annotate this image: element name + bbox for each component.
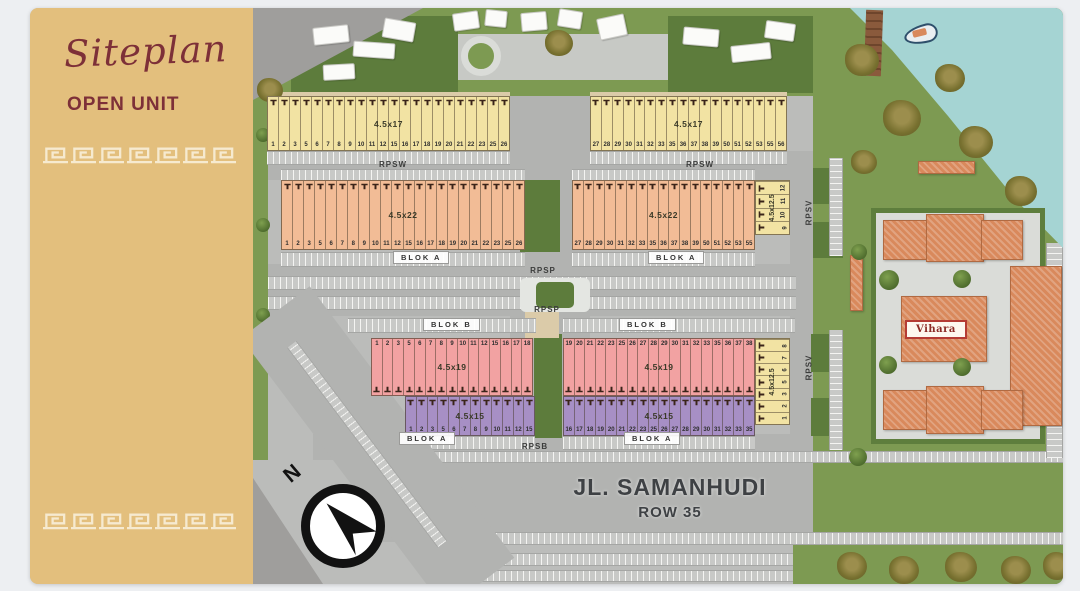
street-name: JL. SAMANHUDI [535,474,805,501]
unit-house-icon [284,183,291,190]
unit-cell-orange-right-32[interactable]: 32 [626,181,637,249]
unit-cell-side-bottom-1[interactable]: 1 [756,412,789,424]
unit-cell-yellow-left-12[interactable]: 12 [377,97,388,150]
unit-cell-yellow-left-10[interactable]: 10 [355,97,366,150]
unit-cell-side-top-12[interactable]: 12 [756,181,789,194]
unit-cell-orange-right-38[interactable]: 38 [679,181,690,249]
block-label-blok-a: BLOK A [648,251,704,264]
unit-cell-pink-right-23[interactable]: 23 [605,339,616,395]
unit-number: 6 [782,368,788,371]
unit-number: 15 [391,142,398,148]
unit-cell-purple-right-35[interactable]: 35 [743,397,754,435]
unit-house-icon [603,99,610,106]
unit-cell-yellow-left-15[interactable]: 15 [388,97,399,150]
unit-cell-orange-left-23[interactable]: 23 [491,181,502,249]
unit-strip-orange-right: 27282930313233353637383950515253554.5x22 [572,180,755,250]
unit-number: 16 [502,341,509,347]
unit-cell-pink-right-29[interactable]: 29 [658,339,669,395]
unit-cell-orange-left-12[interactable]: 12 [391,181,402,249]
unit-cell-purple-right-33[interactable]: 33 [733,397,744,435]
unit-cell-yellow-left-16[interactable]: 16 [399,97,410,150]
unit-cell-pink-left-12[interactable]: 12 [478,339,489,395]
unit-cell-purple-left-3[interactable]: 3 [427,397,438,435]
unit-cell-orange-left-6[interactable]: 6 [325,181,336,249]
unit-cell-purple-left-1[interactable]: 1 [406,397,416,435]
unit-cell-pink-right-35[interactable]: 35 [712,339,723,395]
unit-cell-pink-right-36[interactable]: 36 [722,339,733,395]
unit-cell-purple-left-9[interactable]: 9 [480,397,491,435]
unit-cell-orange-left-20[interactable]: 20 [458,181,469,249]
unit-cell-purple-left-6[interactable]: 6 [448,397,459,435]
unit-number: 7 [463,427,466,433]
unit-cell-yellow-right-27[interactable]: 27 [591,97,601,150]
unit-cell-pink-left-2[interactable]: 2 [382,339,393,395]
unit-house-icon [746,386,753,393]
unit-house-icon [597,399,604,406]
unit-cell-yellow-left-22[interactable]: 22 [465,97,476,150]
unit-house-icon [449,386,456,393]
unit-cell-yellow-right-52[interactable]: 52 [742,97,753,150]
unit-number: 29 [614,142,621,148]
unit-cell-pink-left-16[interactable]: 16 [500,339,511,395]
unit-number: 12 [781,185,787,192]
unit-house-icon [746,183,753,190]
unit-cell-yellow-right-39[interactable]: 39 [710,97,721,150]
unit-cell-yellow-left-2[interactable]: 2 [278,97,289,150]
unit-cell-pink-left-17[interactable]: 17 [511,339,522,395]
unit-cell-yellow-right-36[interactable]: 36 [677,97,688,150]
unit-house-icon [714,399,721,406]
unit-cell-orange-left-11[interactable]: 11 [380,181,391,249]
unit-cell-side-top-10[interactable]: 10 [756,208,789,221]
unit-cell-yellow-right-28[interactable]: 28 [601,97,612,150]
unit-house-icon [314,99,321,106]
unit-number: 38 [746,341,753,347]
orange-structure [850,255,863,311]
unit-cell-yellow-left-25[interactable]: 25 [487,97,498,150]
unit-number: 16 [416,241,423,247]
unit-cell-orange-right-27[interactable]: 27 [573,181,583,249]
unit-house-icon [758,403,765,410]
unit-number: 1 [782,417,788,420]
unit-number: 7 [429,341,432,347]
unit-house-icon [446,99,453,106]
unit-number: 20 [446,142,453,148]
parking-strip [829,158,843,256]
unit-number: 9 [348,142,351,148]
unit-cell-purple-right-31[interactable]: 31 [712,397,723,435]
unit-number: 27 [640,341,647,347]
unit-house-icon [482,183,489,190]
unit-cell-orange-right-31[interactable]: 31 [615,181,626,249]
unit-number: 32 [628,241,635,247]
unit-cell-purple-left-8[interactable]: 8 [470,397,481,435]
unit-number: 39 [712,142,719,148]
unit-number: 37 [735,341,742,347]
unit-cell-pink-right-21[interactable]: 21 [584,339,595,395]
unit-cell-yellow-right-32[interactable]: 32 [644,97,655,150]
greek-key-pattern [43,508,241,532]
unit-cell-yellow-right-30[interactable]: 30 [623,97,634,150]
unit-house-icon [565,386,572,393]
unit-number: 10 [459,341,466,347]
unit-house-icon [493,183,500,190]
unit-cell-orange-left-9[interactable]: 9 [358,181,369,249]
unit-number: 17 [413,142,420,148]
unit-number: 6 [315,142,318,148]
unit-cell-purple-right-23[interactable]: 23 [637,397,648,435]
unit-cell-yellow-left-8[interactable]: 8 [333,97,344,150]
unit-house-icon [490,99,497,106]
unit-number: 33 [658,142,665,148]
unit-house-icon [380,99,387,106]
unit-cell-yellow-right-33[interactable]: 33 [655,97,666,150]
unit-cell-purple-left-2[interactable]: 2 [416,397,427,435]
unit-number: 29 [693,427,700,433]
unit-cell-purple-right-29[interactable]: 29 [690,397,701,435]
unit-house-icon [758,379,765,386]
unit-cell-pink-right-33[interactable]: 33 [701,339,712,395]
unit-cell-side-top-11[interactable]: 11 [756,194,789,207]
unit-house-icon [483,399,490,406]
unit-cell-orange-right-37[interactable]: 37 [668,181,679,249]
unit-house-icon [767,99,774,106]
unit-house-icon [429,399,436,406]
unit-number: 9 [782,226,788,229]
unit-cell-orange-right-35[interactable]: 35 [647,181,658,249]
palm-tree [935,64,965,92]
unit-cell-purple-right-16[interactable]: 16 [564,397,574,435]
unit-cell-side-top-9[interactable]: 9 [756,221,789,234]
unit-house-icon [592,99,599,106]
unit-cell-orange-left-21[interactable]: 21 [469,181,480,249]
unit-cell-pink-left-10[interactable]: 10 [457,339,468,395]
unit-cell-yellow-left-7[interactable]: 7 [322,97,333,150]
unit-cell-yellow-left-11[interactable]: 11 [366,97,377,150]
unit-cell-purple-right-27[interactable]: 27 [669,397,680,435]
unit-house-icon [440,399,447,406]
unit-cell-purple-right-22[interactable]: 22 [627,397,638,435]
unit-house-icon [470,386,477,393]
unit-cell-pink-right-20[interactable]: 20 [574,339,585,395]
unit-cell-pink-left-8[interactable]: 8 [435,339,446,395]
unit-cell-yellow-left-17[interactable]: 17 [410,97,421,150]
unit-house-icon [758,224,765,231]
vihara-building [926,386,984,434]
unit-house-icon [328,183,335,190]
unit-house-icon [724,399,731,406]
unit-cell-purple-left-5[interactable]: 5 [437,397,448,435]
pavilion [557,8,584,30]
unit-cell-purple-right-17[interactable]: 17 [574,397,585,435]
unit-house-icon [413,99,420,106]
unit-cell-side-bottom-8[interactable]: 8 [756,339,789,351]
unit-number: 10 [358,142,365,148]
unit-house-icon [628,183,635,190]
unit-number: 8 [337,142,340,148]
unit-cell-orange-right-29[interactable]: 29 [593,181,604,249]
unit-house-icon [671,399,678,406]
unit-cell-orange-left-15[interactable]: 15 [403,181,414,249]
unit-number: 25 [619,341,626,347]
unit-number: 11 [369,142,375,148]
unit-cell-orange-left-26[interactable]: 26 [513,181,524,249]
unit-cell-yellow-left-9[interactable]: 9 [344,97,355,150]
unit-cell-orange-left-16[interactable]: 16 [414,181,425,249]
parking-strip [563,318,795,333]
palm-tree [1043,552,1063,580]
unit-cell-yellow-right-35[interactable]: 35 [666,97,677,150]
unit-cell-yellow-left-6[interactable]: 6 [311,97,322,150]
block-label-blok-b: BLOK B [423,318,480,331]
unit-number: 17 [513,341,520,347]
unit-number: 17 [576,427,583,433]
unit-cell-side-bottom-2[interactable]: 2 [756,400,789,412]
unit-house-icon [576,386,583,393]
unit-number: 51 [714,241,721,247]
greek-key-unit [211,508,236,530]
unit-cell-side-bottom-7[interactable]: 7 [756,351,789,363]
unit-cell-yellow-left-20[interactable]: 20 [443,97,454,150]
unit-cell-purple-left-15[interactable]: 15 [523,397,534,435]
unit-cell-pink-left-18[interactable]: 18 [521,339,532,395]
unit-number: 26 [629,341,636,347]
unit-cell-purple-left-12[interactable]: 12 [513,397,524,435]
unit-cell-orange-left-2[interactable]: 2 [292,181,303,249]
unit-number: 22 [483,241,490,247]
unit-number: 31 [617,241,624,247]
unit-house-icon [617,183,624,190]
unit-house-icon [703,386,710,393]
unit-cell-yellow-right-55[interactable]: 55 [764,97,775,150]
unit-house-icon [701,99,708,106]
unit-cell-yellow-left-21[interactable]: 21 [454,97,465,150]
unit-cell-pink-right-28[interactable]: 28 [648,339,659,395]
unit-cell-purple-right-19[interactable]: 19 [595,397,606,435]
unit-house-icon [640,399,647,406]
unit-house-icon [756,99,763,106]
unit-house-icon [336,99,343,106]
unit-house-icon [460,183,467,190]
unit-cell-yellow-left-5[interactable]: 5 [300,97,311,150]
unit-number: 20 [576,341,583,347]
unit-cell-purple-right-32[interactable]: 32 [722,397,733,435]
unit-cell-pink-right-19[interactable]: 19 [564,339,574,395]
unit-cell-purple-right-30[interactable]: 30 [701,397,712,435]
unit-house-icon [724,386,731,393]
road-label-rpsp-bottom: RPSP [512,305,582,314]
unit-house-icon [350,183,357,190]
unit-house-icon [681,183,688,190]
unit-cell-orange-left-22[interactable]: 22 [480,181,491,249]
unit-cell-orange-left-17[interactable]: 17 [425,181,436,249]
unit-number: 11 [781,198,787,204]
unit-cell-side-bottom-6[interactable]: 6 [756,363,789,375]
unit-cell-orange-left-5[interactable]: 5 [314,181,325,249]
unit-cell-orange-right-53[interactable]: 53 [733,181,744,249]
unit-cell-orange-right-36[interactable]: 36 [658,181,669,249]
unit-cell-purple-right-21[interactable]: 21 [616,397,627,435]
unit-house-icon [661,386,668,393]
unit-cell-purple-left-10[interactable]: 10 [491,397,502,435]
unit-cell-purple-left-11[interactable]: 11 [502,397,513,435]
unit-house-icon [629,386,636,393]
unit-cell-pink-right-31[interactable]: 31 [680,339,691,395]
unit-cell-pink-left-1[interactable]: 1 [372,339,382,395]
unit-number: 2 [386,341,389,347]
clubhouse-building [352,41,395,60]
unit-house-icon [724,183,731,190]
unit-cell-orange-left-8[interactable]: 8 [347,181,358,249]
unit-cell-orange-left-19[interactable]: 19 [447,181,458,249]
unit-cell-purple-right-26[interactable]: 26 [658,397,669,435]
unit-cell-orange-left-3[interactable]: 3 [303,181,314,249]
tree [953,270,971,288]
unit-house-icon [391,99,398,106]
unit-cell-purple-right-28[interactable]: 28 [680,397,691,435]
unit-cell-orange-right-50[interactable]: 50 [700,181,711,249]
green-gap-south [534,334,562,438]
unit-cell-pink-left-15[interactable]: 15 [489,339,500,395]
unit-house-icon [565,399,572,406]
greek-key-unit [155,508,180,530]
unit-house-icon [369,99,376,106]
unit-cell-orange-right-55[interactable]: 55 [743,181,754,249]
unit-cell-purple-right-20[interactable]: 20 [605,397,616,435]
unit-number: 7 [782,356,788,359]
unit-cell-orange-left-25[interactable]: 25 [502,181,513,249]
greek-key-pattern [43,142,241,166]
unit-cell-orange-right-33[interactable]: 33 [636,181,647,249]
greek-key-unit [127,142,152,164]
greek-key-unit [183,508,208,530]
unit-cell-yellow-left-23[interactable]: 23 [476,97,487,150]
unit-cell-yellow-left-26[interactable]: 26 [498,97,509,150]
unit-house-icon [427,183,434,190]
unit-number: 27 [593,142,600,148]
unit-cell-pink-left-11[interactable]: 11 [468,339,479,395]
unit-number: 26 [516,241,523,247]
unit-cell-yellow-right-53[interactable]: 53 [753,97,764,150]
unit-cell-side-bottom-3[interactable]: 3 [756,388,789,400]
unit-cell-side-bottom-5[interactable]: 5 [756,375,789,387]
unit-house-icon [746,399,753,406]
unit-cell-pink-left-6[interactable]: 6 [414,339,425,395]
unit-cell-orange-left-1[interactable]: 1 [282,181,292,249]
unit-house-icon [416,183,423,190]
unit-cell-purple-right-18[interactable]: 18 [584,397,595,435]
unit-cell-yellow-left-19[interactable]: 19 [432,97,443,150]
greek-key-unit [99,508,124,530]
unit-cell-pink-right-38[interactable]: 38 [743,339,754,395]
unit-strip-purple-right: 1617181920212223252627282930313233354.5x… [563,396,755,436]
compass-north-label: N [279,460,306,488]
unit-cell-pink-left-9[interactable]: 9 [446,339,457,395]
clubhouse-building [312,24,350,46]
unit-house-icon [585,183,592,190]
unit-house-icon [606,183,613,190]
unit-house-icon [714,386,721,393]
unit-house-icon [680,99,687,106]
unit-house-icon [394,183,401,190]
unit-cell-yellow-right-51[interactable]: 51 [732,97,743,150]
unit-cell-orange-right-51[interactable]: 51 [711,181,722,249]
unit-house-icon [703,399,710,406]
unit-cell-pink-left-7[interactable]: 7 [425,339,436,395]
unit-cell-purple-right-25[interactable]: 25 [648,397,659,435]
unit-number: 17 [427,241,434,247]
unit-house-icon [618,386,625,393]
unit-cell-pink-right-25[interactable]: 25 [616,339,627,395]
unit-cell-yellow-right-50[interactable]: 50 [721,97,732,150]
unit-cell-pink-right-30[interactable]: 30 [669,339,680,395]
compass-icon [301,484,385,568]
unit-cell-yellow-right-37[interactable]: 37 [688,97,699,150]
unit-cell-pink-right-27[interactable]: 27 [637,339,648,395]
unit-number: 10 [494,427,501,433]
unit-number: 28 [682,427,689,433]
unit-cell-orange-right-30[interactable]: 30 [604,181,615,249]
unit-house-icon [758,366,765,373]
unit-number: 6 [330,241,333,247]
unit-cell-pink-right-32[interactable]: 32 [690,339,701,395]
unit-cell-yellow-right-31[interactable]: 31 [634,97,645,150]
unit-house-icon [438,386,445,393]
unit-number: 21 [457,142,464,148]
unit-cell-orange-left-18[interactable]: 18 [436,181,447,249]
unit-house-icon [758,211,765,218]
unit-house-icon [504,399,511,406]
unit-cell-pink-right-26[interactable]: 26 [627,339,638,395]
palm-tree [851,150,877,174]
unit-number: 22 [597,341,604,347]
unit-number: 15 [492,341,499,347]
unit-cell-yellow-right-38[interactable]: 38 [699,97,710,150]
unit-number: 3 [397,341,400,347]
unit-cell-pink-left-3[interactable]: 3 [392,339,403,395]
unit-house-icon [303,99,310,106]
pavilion [484,9,508,28]
unit-cell-yellow-left-3[interactable]: 3 [289,97,300,150]
unit-cell-orange-left-10[interactable]: 10 [369,181,380,249]
unit-house-icon [735,386,742,393]
unit-cell-yellow-left-18[interactable]: 18 [421,97,432,150]
unit-cell-yellow-left-1[interactable]: 1 [268,97,278,150]
unit-cell-purple-left-7[interactable]: 7 [459,397,470,435]
unit-cell-yellow-right-29[interactable]: 29 [612,97,623,150]
unit-cell-orange-right-39[interactable]: 39 [690,181,701,249]
road-label-rpsw-right: RPSW [665,160,735,169]
unit-cell-pink-right-37[interactable]: 37 [733,339,744,395]
unit-cell-orange-left-7[interactable]: 7 [336,181,347,249]
unit-cell-orange-right-28[interactable]: 28 [583,181,594,249]
greek-key-unit [71,508,96,530]
unit-cell-pink-right-22[interactable]: 22 [595,339,606,395]
unit-number: 36 [725,341,732,347]
unit-cell-pink-left-5[interactable]: 5 [403,339,414,395]
unit-house-icon [395,386,402,393]
unit-number: 8 [440,341,443,347]
unit-number: 32 [693,341,700,347]
unit-number: 33 [735,427,742,433]
unit-cell-orange-right-52[interactable]: 52 [722,181,733,249]
unit-number: 35 [649,241,656,247]
unit-number: 1 [375,341,378,347]
unit-house-icon [758,342,765,349]
unit-cell-yellow-right-56[interactable]: 56 [775,97,786,150]
unit-house-icon [574,183,581,190]
unit-number: 39 [692,241,699,247]
